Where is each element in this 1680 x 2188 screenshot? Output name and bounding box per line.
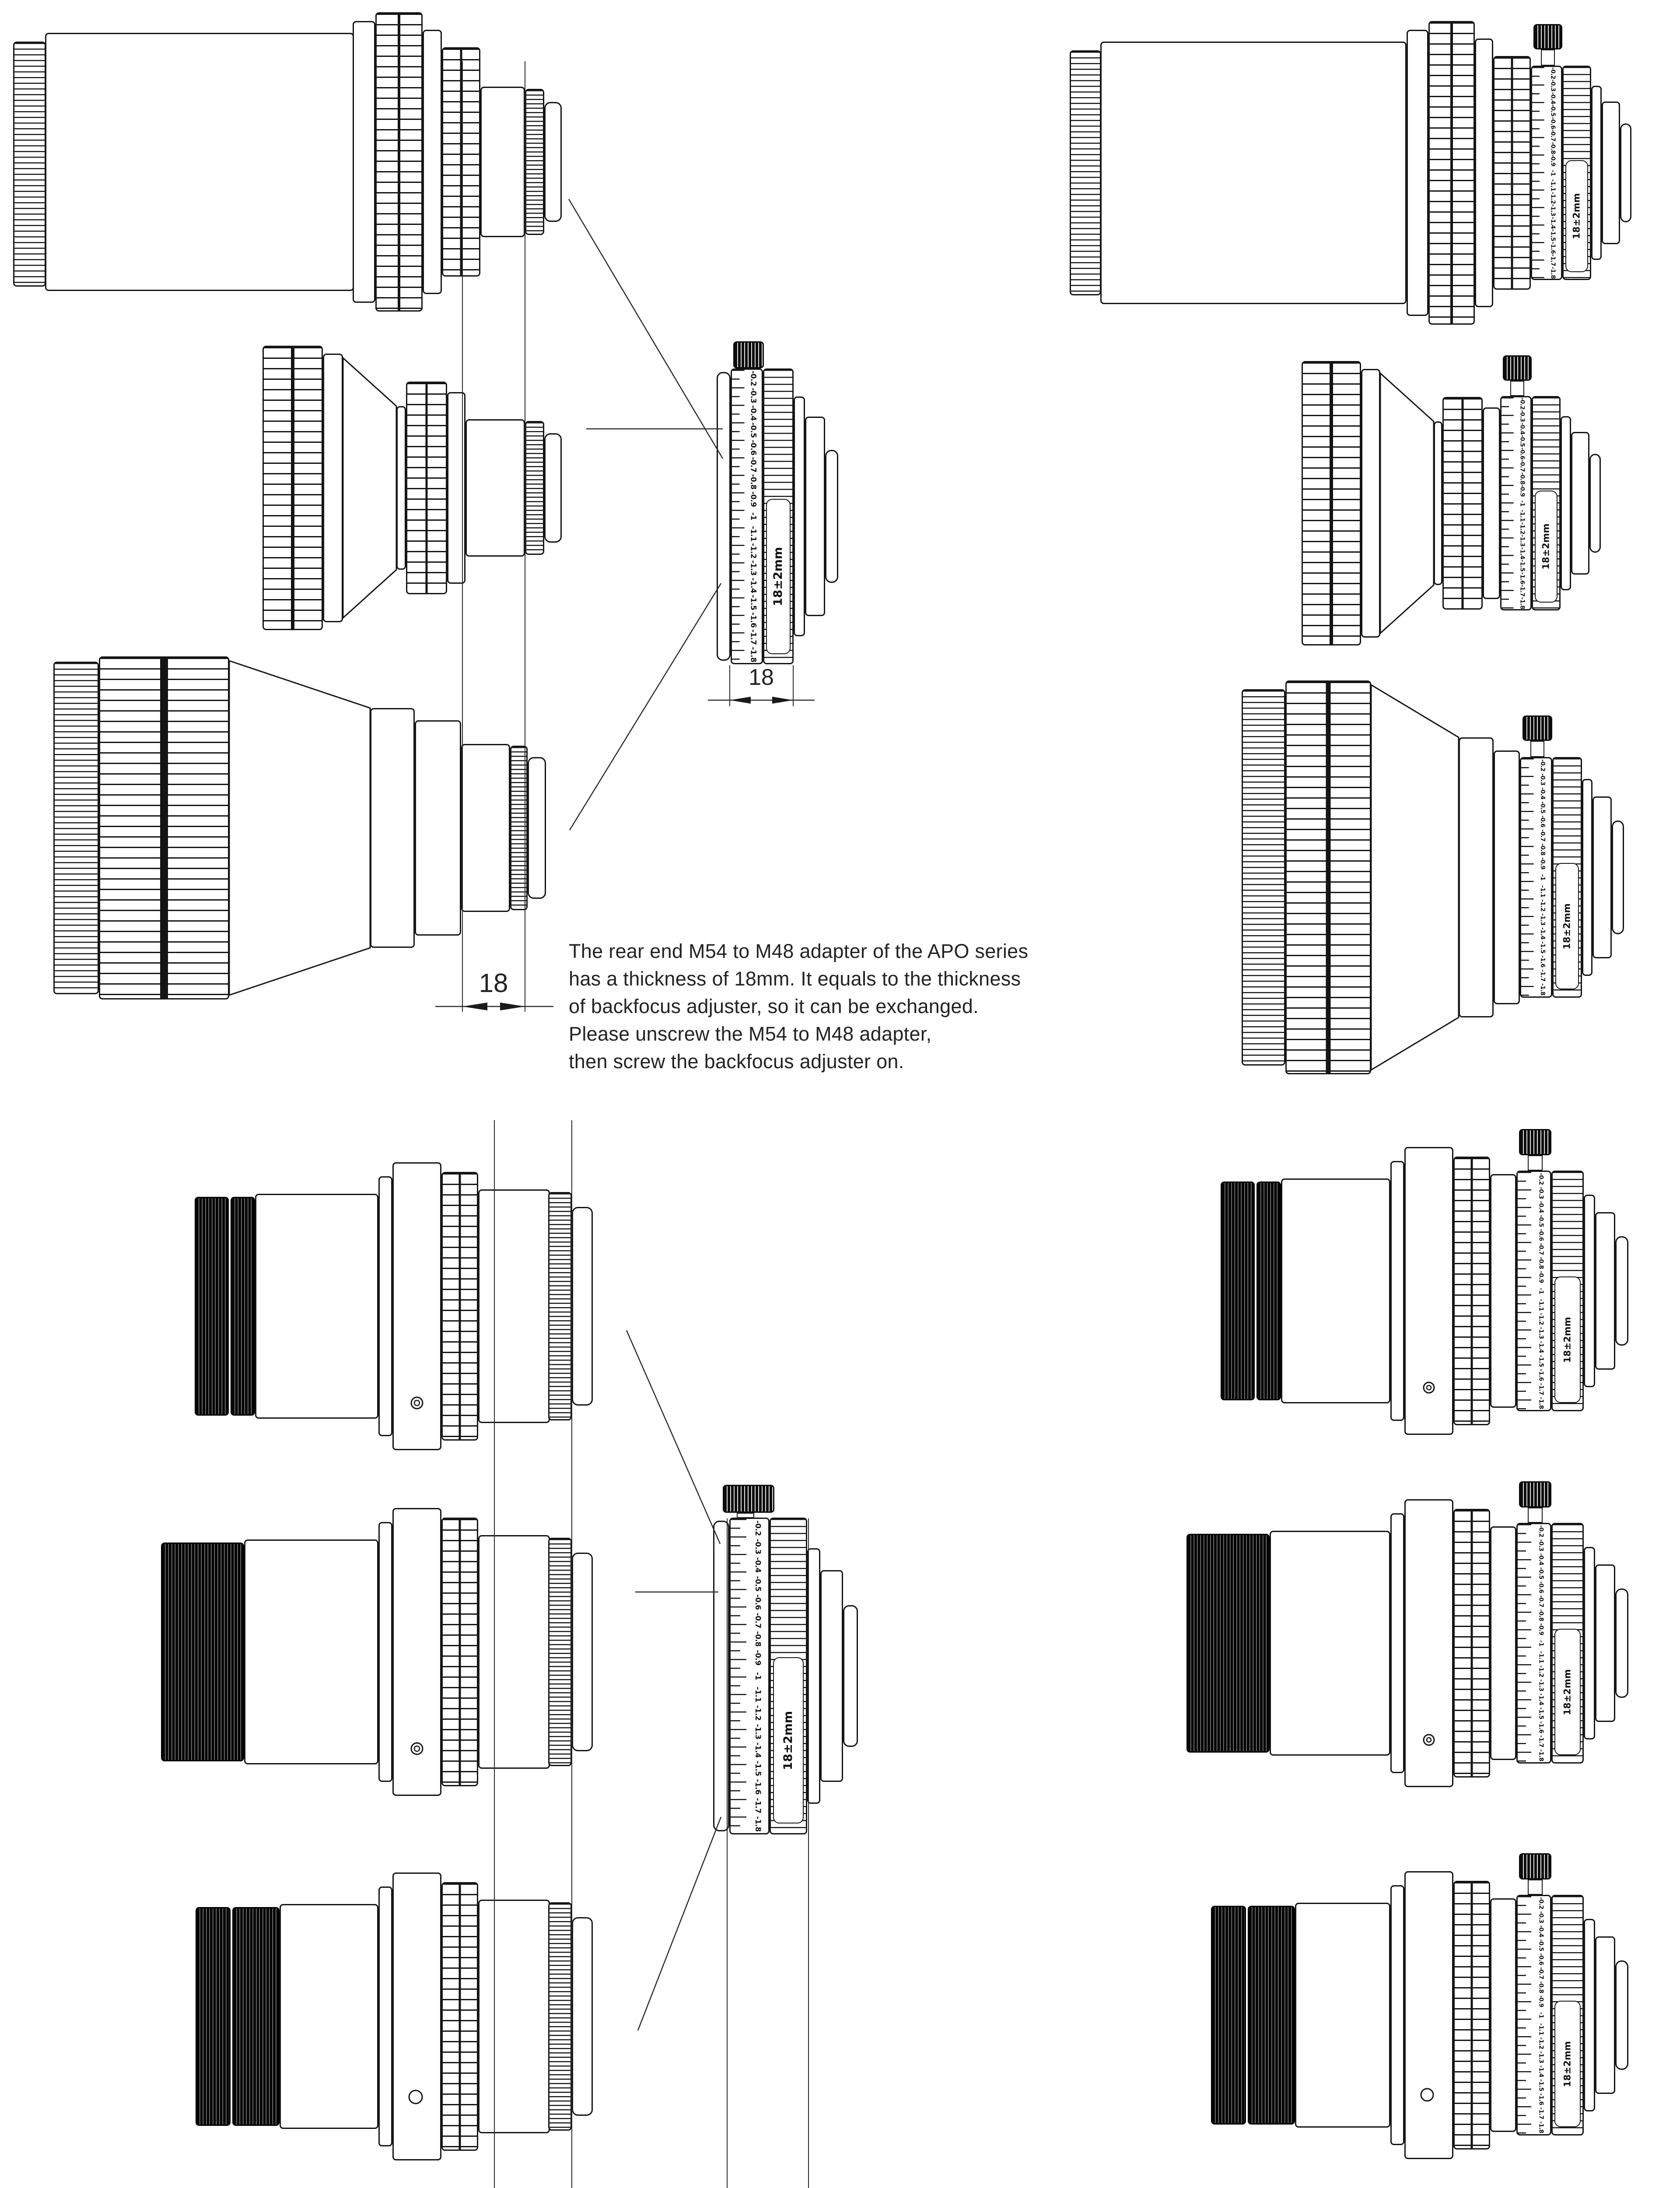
screw-icon	[1424, 1735, 1434, 1745]
hole-icon	[409, 2090, 422, 2104]
callout-line	[570, 583, 721, 830]
dimension-arrow	[462, 1003, 487, 1010]
dimension-arrow	[730, 697, 751, 704]
note-line: of backfocus adjuster, so it can be exch…	[569, 992, 1102, 1020]
apo-series-note: The rear end M54 to M48 adapter of the A…	[569, 937, 1102, 1075]
dimension-value-apo-adjuster: 18	[726, 664, 796, 691]
dimension-arrow	[500, 1003, 525, 1010]
screw-icon	[411, 1743, 423, 1754]
hole-icon	[1421, 2089, 1433, 2101]
note-line: The rear end M54 to M48 adapter of the A…	[569, 937, 1102, 965]
note-line: Please unscrew the M54 to M48 adapter,	[569, 1020, 1102, 1048]
screw-icon	[411, 1397, 423, 1409]
screw-icon	[1424, 1382, 1434, 1393]
callout-line	[626, 1330, 720, 1544]
note-line: then screw the backfocus adjuster on.	[569, 1048, 1102, 1075]
note-line: has a thickness of 18mm. It equals to th…	[569, 965, 1102, 992]
annotation-lines-layer	[0, 0, 1680, 2188]
dimension-arrow	[772, 697, 793, 704]
dimension-value-apo-rear: 18	[458, 968, 528, 998]
callout-line	[638, 1817, 721, 2030]
callout-line	[569, 199, 723, 459]
technical-drawing-page: -0.2-0.3-0.4-0.5-0.6-0.7-0.8-0.9-1-1.1-1…	[0, 0, 1680, 2188]
